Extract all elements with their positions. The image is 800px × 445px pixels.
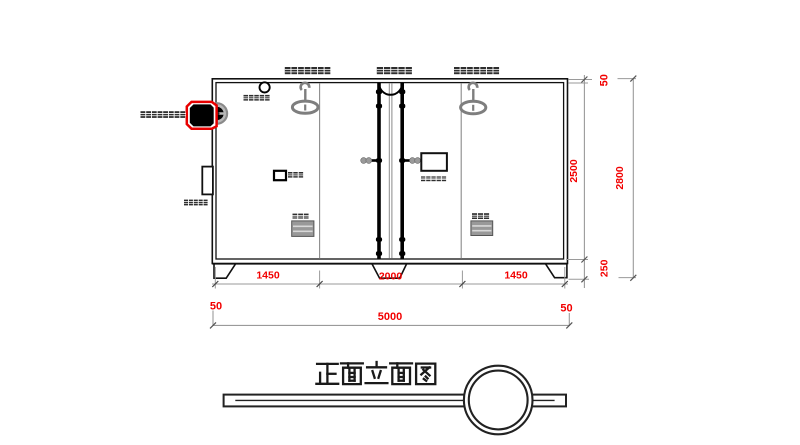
svg-text:50: 50: [560, 303, 572, 315]
svg-text:50: 50: [599, 74, 611, 86]
svg-text:1450: 1450: [256, 270, 280, 282]
svg-text:50: 50: [210, 301, 222, 313]
svg-text:5000: 5000: [378, 311, 402, 323]
svg-text:250: 250: [599, 259, 611, 277]
svg-text:2000: 2000: [379, 271, 403, 283]
svg-text:2500: 2500: [568, 159, 580, 183]
svg-text:2800: 2800: [614, 166, 626, 190]
svg-text:1450: 1450: [504, 270, 528, 282]
